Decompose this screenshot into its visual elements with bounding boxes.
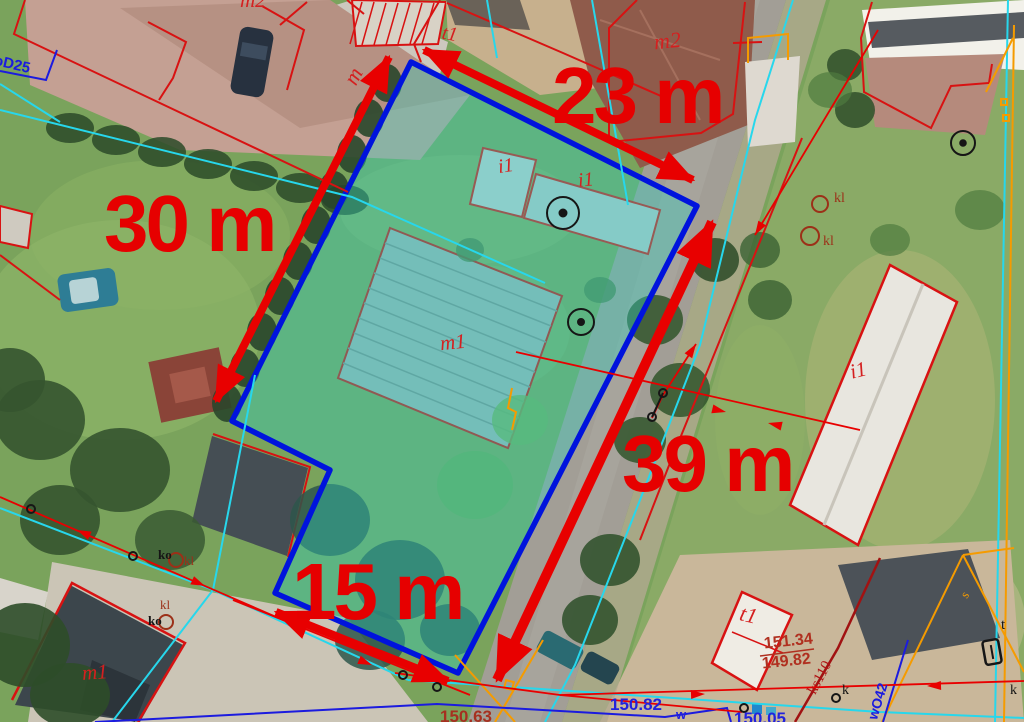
manhole-label-ko-bottom-2: ko <box>148 614 162 627</box>
building-label-m1-bottom-left: m1 <box>81 661 108 684</box>
dimension-label-bottom: 15 m <box>292 552 462 632</box>
building-label-m1-greenhouse: m1 <box>439 331 467 355</box>
dimension-label-left: 30 m <box>104 184 274 264</box>
building-label-i1-shed-left: i1 <box>497 155 515 177</box>
manhole-label-kl-bottom-1: kl <box>184 554 194 567</box>
building-label-m2-top-left: m2 <box>240 0 266 11</box>
elevation-level-center: 150.82 <box>610 696 662 713</box>
node-label-k-right: k <box>1010 684 1017 698</box>
node-label-k-left: k <box>842 684 849 698</box>
elevation-level-right: 150.05 <box>734 710 786 722</box>
manhole-label-kl-right-2: kl <box>823 235 834 249</box>
car-left <box>57 267 120 313</box>
aerial-cadastral-map[interactable]: 23 m 30 m 39 m 15 m m2 m t1 m2 i1 i1 m1 … <box>0 0 1024 722</box>
elevation-w-mark: w <box>676 708 686 721</box>
dimension-label-top: 23 m <box>552 56 722 136</box>
manhole-label-ko-bottom-1: ko <box>158 548 172 561</box>
elevation-level-left: 150.63 <box>440 708 492 722</box>
manhole-label-kl-bottom-2: kl <box>160 598 170 611</box>
building-label-m2-top-right: m2 <box>653 29 682 54</box>
building-label-i1-shed-right: i1 <box>577 169 595 191</box>
manhole-label-kl-right-1: kl <box>834 192 845 206</box>
transformer-label-t: t <box>1001 618 1005 633</box>
dimension-label-right: 39 m <box>622 424 792 504</box>
